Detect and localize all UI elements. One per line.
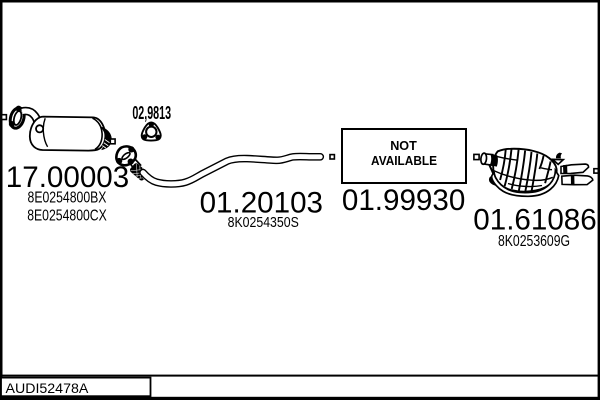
svg-text:8K0254350S: 8K0254350S <box>228 213 299 231</box>
svg-text:8K0253609G: 8K0253609G <box>498 232 570 250</box>
svg-text:01.99930: 01.99930 <box>342 184 465 217</box>
svg-text:NOT: NOT <box>390 139 417 153</box>
svg-text:02,9813: 02,9813 <box>132 103 171 124</box>
svg-text:AVAILABLE: AVAILABLE <box>371 154 437 168</box>
svg-text:AUDI52478A: AUDI52478A <box>6 381 89 397</box>
svg-text:8E0254800BX: 8E0254800BX <box>28 188 107 206</box>
svg-text:8E0254800CX: 8E0254800CX <box>27 206 107 224</box>
